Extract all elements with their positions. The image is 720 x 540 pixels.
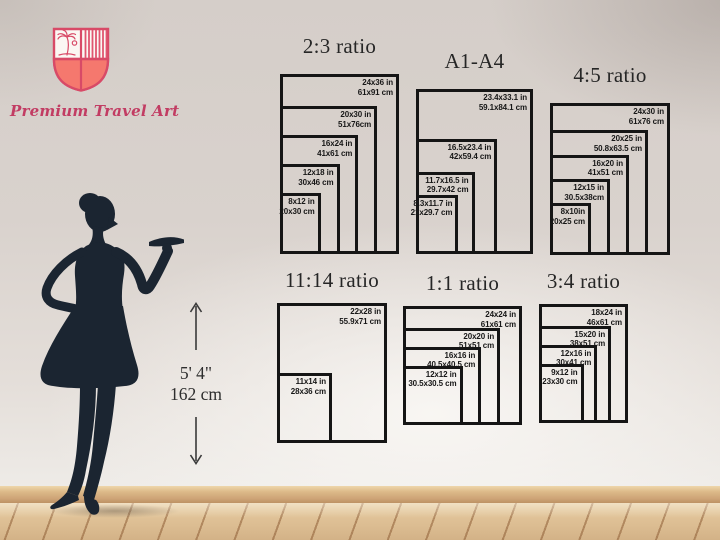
size-label: 12x18 in30x46 cm xyxy=(298,168,333,187)
height-measurement: 5' 4" 162 cm xyxy=(166,302,226,465)
chart-title: 3:4 ratio xyxy=(547,269,620,294)
size-label: 11.7x16.5 in29.7x42 cm xyxy=(425,176,468,195)
size-box-outer: 18x24 in46x61 cm15x20 in38x51 cm12x16 in… xyxy=(539,304,628,423)
size-chart-4-5: 4:5 ratio 24x30 in61x76 cm20x25 in50.8x6… xyxy=(550,103,670,255)
arrow-up-icon xyxy=(188,302,204,350)
size-label: 8.3x11.7 in21x29.7 cm xyxy=(411,199,453,218)
size-label: 24x36 in61x91 cm xyxy=(358,78,393,97)
size-box: 12x12 in30.5x30.5 cm xyxy=(406,366,463,423)
size-box-outer: 24x24 in61x61 cm20x20 in51x51 cm16x16 in… xyxy=(403,306,522,425)
size-chart-2-3: 2:3 ratio 24x36 in61x91 cm20x30 in51x76c… xyxy=(280,74,399,254)
size-label: 23.4x33.1 in59.1x84.1 cm xyxy=(479,93,527,112)
size-label: 24x24 in61x61 cm xyxy=(481,310,516,329)
chart-title: 1:1 ratio xyxy=(426,271,499,296)
chart-title: 4:5 ratio xyxy=(573,63,646,88)
chart-title: 2:3 ratio xyxy=(303,34,376,59)
arrow-down-icon xyxy=(188,417,204,465)
size-label: 8x12 in20x30 cm xyxy=(279,197,314,216)
chart-title: 11:14 ratio xyxy=(285,268,379,293)
size-chart-1-1: 1:1 ratio 24x24 in61x61 cm20x20 in51x51 … xyxy=(403,306,522,425)
size-box: 11x14 in28x36 cm xyxy=(280,373,332,440)
size-label: 9x12 in23x30 cm xyxy=(542,368,577,387)
size-label: 24x30 in61x76 cm xyxy=(629,107,664,126)
size-label: 22x28 in55.9x71 cm xyxy=(339,307,381,326)
size-label: 18x24 in46x61 cm xyxy=(587,308,622,327)
size-label: 12x12 in30.5x30.5 cm xyxy=(408,370,456,389)
size-label: 20x25 in50.8x63.5 cm xyxy=(594,134,642,153)
size-box-outer: 24x30 in61x76 cm20x25 in50.8x63.5 cm16x2… xyxy=(550,103,670,255)
size-box-outer: 23.4x33.1 in59.1x84.1 cm16.5x23.4 in42x5… xyxy=(416,89,533,254)
size-box-outer: 22x28 in55.9x71 cm11x14 in28x36 cm xyxy=(277,303,387,443)
brand-name: Premium Travel Art xyxy=(10,102,152,120)
size-box: 9x12 in23x30 cm xyxy=(542,364,584,421)
size-label: 16x24 in41x61 cm xyxy=(317,139,352,158)
size-box: 8x10in20x25 cm xyxy=(553,203,591,252)
size-chart-a1-a4: A1-A4 23.4x33.1 in59.1x84.1 cm16.5x23.4 … xyxy=(416,89,533,254)
size-box: 8.3x11.7 in21x29.7 cm xyxy=(419,195,458,251)
shield-palm-crest-icon xyxy=(50,26,112,94)
size-chart-3-4: 3:4 ratio 18x24 in46x61 cm15x20 in38x51 … xyxy=(539,304,628,423)
height-imperial: 5' 4" xyxy=(166,363,226,384)
size-label: 20x30 in51x76cm xyxy=(338,110,371,129)
height-metric: 162 cm xyxy=(166,384,226,405)
woman-silhouette xyxy=(36,190,186,520)
brand-logo: Premium Travel Art xyxy=(10,26,152,120)
size-label: 11x14 in28x36 cm xyxy=(291,377,326,396)
chart-title: A1-A4 xyxy=(445,49,505,74)
size-label: 16.5x23.4 in42x59.4 cm xyxy=(448,143,492,162)
size-box-outer: 24x36 in61x91 cm20x30 in51x76cm16x24 in4… xyxy=(280,74,399,254)
size-chart-11-14: 11:14 ratio 22x28 in55.9x71 cm11x14 in28… xyxy=(277,303,387,443)
size-label: 12x15 in30.5x38cm xyxy=(564,183,604,202)
size-label: 16x20 in41x51 cm xyxy=(588,159,623,178)
size-label: 8x10in20x25 cm xyxy=(550,207,585,226)
size-box: 8x12 in20x30 cm xyxy=(283,193,321,251)
